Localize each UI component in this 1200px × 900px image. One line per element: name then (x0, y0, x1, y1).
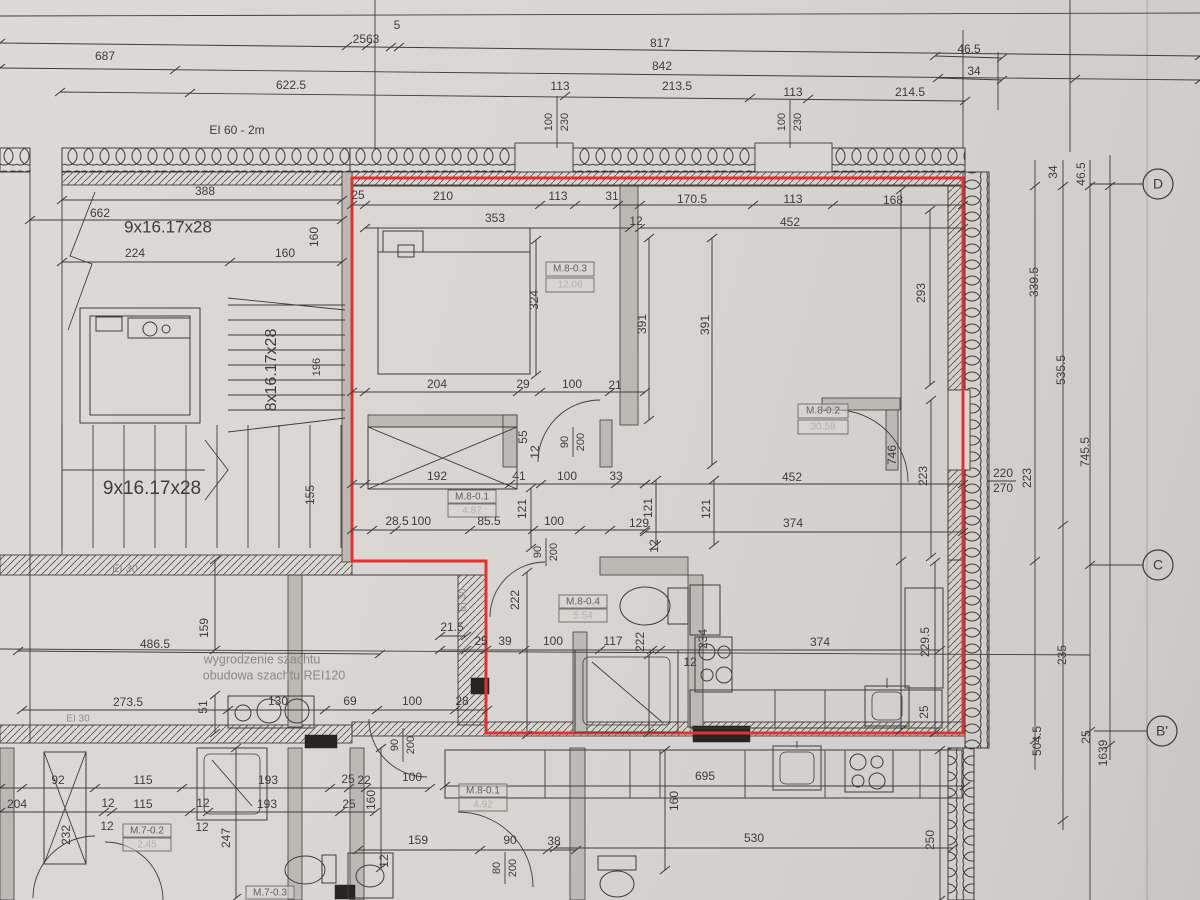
dimension-label: 92 (51, 773, 65, 787)
dimension-label: M.8-0.3 (553, 264, 587, 275)
interior-wall (350, 748, 364, 900)
dimension-label: 270 (993, 481, 1013, 495)
dimension-label: 204 (427, 377, 447, 391)
dimension-label: 160 (667, 791, 681, 811)
dimension-tick (560, 92, 570, 100)
fixture-circle (716, 667, 732, 683)
grid-marker-label: D (1153, 176, 1163, 192)
fixture (322, 855, 336, 883)
dimension-label: 224 (125, 246, 145, 260)
drawing-path (205, 440, 228, 500)
dimension-label: 22 (357, 773, 371, 787)
dimension-label: 100 (557, 469, 577, 483)
window (515, 143, 573, 172)
fixture-circle (852, 775, 864, 787)
dimension-label: 46.5 (957, 42, 981, 56)
dimension-label: 51 (196, 700, 210, 714)
dimension-label: 214.5 (895, 85, 925, 99)
dimension-label: 159 (197, 618, 211, 638)
dimension-label: 160 (275, 246, 295, 260)
dimension-label: 324 (527, 290, 541, 310)
dimension-label: 85.5 (477, 514, 501, 528)
fixture-ellipse (620, 587, 670, 625)
dimension-label: 130 (268, 694, 288, 708)
dimension-label: 339.5 (1027, 267, 1041, 297)
fixture-inner (780, 752, 814, 784)
dimension-label: 12 (101, 796, 115, 810)
dimension-label: 5.54 (573, 611, 593, 622)
dimension-label: 2563 (353, 32, 380, 46)
dimension-label: 2.45 (137, 840, 157, 851)
interior-wall (570, 748, 585, 900)
dimension-label: 247 (219, 828, 233, 848)
column-marker (335, 885, 355, 899)
dimension-label: 12 (377, 854, 391, 868)
dimension-label: 695 (695, 769, 715, 783)
dimension-label: 160 (364, 790, 378, 810)
dimension-label: 113 (550, 79, 569, 93)
dimension-label: 160 (307, 227, 321, 247)
dimension-label: 293 (914, 283, 928, 303)
dimension-label: 38 (547, 834, 561, 848)
fixture (398, 245, 414, 257)
dimension-label: 230 (792, 113, 804, 131)
dimension-label: 100 (402, 694, 422, 708)
drawing-line (228, 418, 345, 432)
dimension-label: 25 (342, 797, 356, 811)
exterior-wall-insulation (948, 748, 974, 900)
drawing-line (0, 13, 1200, 16)
drawing-line (228, 298, 345, 310)
dimension-label: 25 (917, 705, 931, 719)
grid-marker-label: C (1153, 557, 1163, 573)
dimension-label: 121 (699, 499, 713, 519)
interior-wall (288, 748, 302, 900)
dimension-label: 193 (258, 773, 278, 787)
dimension-label: 100 (402, 770, 422, 784)
dimension-label: 25 (351, 188, 365, 202)
dimension-label: 100 (544, 514, 564, 528)
dimension-label: 200 (507, 859, 519, 877)
dimension-label: 25 (341, 772, 355, 786)
dimension-label: 121 (641, 498, 655, 518)
dimension-label: 662 (90, 206, 110, 220)
drawing-path (458, 812, 533, 887)
dimension-line (18, 651, 380, 654)
dimension-label: 69 (343, 694, 357, 708)
dimension-label: 745.5 (1078, 437, 1092, 467)
dimension-label: 530 (744, 831, 764, 845)
dimension-label: 210 (433, 189, 453, 203)
fixture (128, 318, 190, 338)
dimension-label: 121 (515, 499, 529, 519)
dimension-label: 113 (783, 192, 802, 206)
dimension-label: 388 (195, 184, 215, 198)
dimension-label: 8x16.17x28 (263, 329, 280, 412)
dimension-label: 223 (1020, 468, 1034, 488)
dimension-label: 504.5 (1030, 726, 1044, 756)
dimension-label: 535.5 (1054, 355, 1068, 385)
dimension-label: 486.5 (140, 637, 170, 651)
dimension-label: 452 (780, 215, 800, 229)
dimension-label: 90 (389, 739, 401, 751)
exterior-wall-insulation (0, 148, 30, 172)
dimension-label: 12 (196, 796, 210, 810)
wall-hatch (62, 172, 350, 185)
dimension-label: 90 (559, 436, 571, 448)
dimension-label: 12 (195, 820, 209, 834)
dimension-label: 222 (633, 632, 647, 652)
drawing-path (538, 400, 600, 462)
exterior-wall-insulation (350, 148, 515, 172)
dimension-label: 374 (810, 635, 830, 649)
dimension-label: 229.5 (918, 627, 932, 657)
fixture (80, 308, 200, 423)
dimension-label: 234 (696, 629, 710, 649)
dimension-label: 213.5 (662, 79, 692, 93)
dimension-label: 232 (59, 825, 73, 845)
dimension-label: 28.5 (385, 514, 409, 528)
dimension-label: obudowa szachtu REI120 (203, 668, 346, 682)
dimension-label: 192 (427, 469, 447, 483)
fixture-inner (872, 692, 902, 720)
dimension-label: EI 30 (458, 588, 469, 612)
dimension-label: 12 (683, 655, 697, 669)
dimension-line (0, 68, 1200, 80)
dimension-label: 34 (1046, 165, 1060, 179)
dimension-label: EI 60 - 2m (209, 123, 264, 137)
wall-hatch (0, 555, 352, 575)
window (948, 390, 970, 470)
dimension-label: 117 (603, 634, 622, 648)
fixture-circle (871, 756, 883, 768)
floor-plan-svg: 68725635817842622.5113213.5113214.546.53… (0, 0, 1200, 900)
dimension-label: 90 (503, 833, 517, 847)
dimension-label: 193 (257, 797, 277, 811)
dimension-label: 9x16.17x28 (103, 478, 201, 499)
dimension-label: EI 30 (66, 714, 90, 725)
dimension-label: 200 (548, 543, 560, 561)
fixture (668, 588, 688, 624)
fixture (598, 856, 636, 870)
dimension-line (0, 43, 1200, 56)
interior-wall (368, 415, 517, 427)
dimension-label: EI 30 (112, 563, 138, 575)
dimension-label: M.7-0.3 (253, 888, 287, 899)
dimension-label: 353 (485, 211, 505, 225)
dimension-label: 100 (562, 377, 582, 391)
dimension-label: 842 (652, 59, 672, 73)
dimension-label: 115 (133, 797, 152, 811)
dimension-label: 12 (647, 539, 661, 553)
dimension-label: 41 (512, 469, 526, 483)
grid-marker-label: B' (1156, 723, 1168, 739)
dimension-label: 25 (474, 634, 488, 648)
dimension-label: M.7-0.2 (130, 826, 164, 837)
dimension-line (60, 92, 965, 101)
dimension-line (935, 56, 1002, 58)
fixture (378, 228, 530, 374)
blueprint-page: 68725635817842622.5113213.5113214.546.53… (0, 0, 1200, 900)
interior-wall (0, 748, 14, 900)
dimension-label: 235 (1055, 645, 1069, 665)
dimension-label: 622.5 (276, 78, 306, 92)
dimension-label: 46.5 (1074, 162, 1088, 186)
dimension-label: 113 (783, 85, 802, 99)
dimension-label: 100 (776, 113, 788, 131)
dimension-label: 100 (543, 113, 555, 131)
dimension-label: 1639 (1096, 739, 1110, 766)
dimension-label: 155 (303, 485, 317, 505)
dimension-label: 21 (608, 378, 622, 392)
dimension-label: 21.5 (440, 620, 464, 634)
exterior-wall-insulation (832, 148, 965, 172)
dimension-label: wygrodzenie szachtu (203, 652, 321, 666)
dimension-label: 30.58 (810, 422, 835, 433)
dimension-label: M.8-0.1 (455, 492, 489, 503)
fixture-circle (162, 325, 170, 333)
dimension-tick (342, 42, 352, 50)
dimension-tick (745, 94, 755, 102)
dimension-label: 25 (1079, 730, 1093, 744)
dimension-label: 113 (548, 189, 567, 203)
fixture-circle (850, 754, 866, 770)
dimension-label: 9x16.17x28 (124, 217, 212, 236)
dimension-label: 200 (575, 433, 587, 451)
dimension-label: 39 (498, 634, 512, 648)
dimension-label: 230 (559, 113, 571, 131)
dimension-label: 29 (516, 377, 530, 391)
dimension-label: 220 (993, 466, 1013, 480)
dimension-label: 80 (491, 862, 503, 874)
dimension-label: 687 (95, 49, 115, 63)
dimension-label: 374 (783, 516, 803, 530)
dimension-label: 12 (100, 819, 114, 833)
dimension-label: 28 (455, 694, 469, 708)
dimension-label: 5 (394, 18, 401, 32)
dimension-label: 12 (629, 214, 643, 228)
interior-wall (600, 420, 612, 467)
dimension-label: 100 (411, 514, 431, 528)
interior-wall (600, 557, 688, 575)
dimension-label: 452 (782, 470, 802, 484)
dimension-label: 31 (605, 189, 619, 203)
drawing-path (592, 662, 662, 722)
dimension-label: 222 (508, 590, 522, 610)
dimension-label: 4.92 (473, 800, 493, 811)
dimension-label: 170.5 (677, 192, 707, 206)
dimension-label: M.8-0.2 (806, 406, 840, 417)
dimension-label: 391 (698, 315, 712, 335)
fixture-ellipse (600, 871, 634, 897)
dimension-label: 55 (516, 430, 530, 444)
dimension-label: 34 (967, 64, 981, 78)
dimension-label: M.8-0.4 (566, 597, 600, 608)
fixture (383, 231, 423, 252)
fixture-circle (235, 705, 251, 721)
window (755, 143, 832, 172)
exterior-wall-insulation (573, 148, 755, 172)
dimension-label: 273.5 (113, 695, 143, 709)
dimension-label: M.8-0.1 (466, 786, 500, 797)
fixture-circle (718, 646, 730, 658)
dimension-label: 746 (885, 445, 899, 465)
column-marker (305, 735, 337, 748)
dimension-label: 159 (408, 833, 428, 847)
drawing-path (212, 760, 252, 806)
dimension-label: 168 (883, 193, 903, 207)
interior-wall (503, 415, 517, 467)
dimension-label: 12.06 (557, 280, 582, 291)
dimension-label: 391 (635, 314, 649, 334)
dimension-label: 200 (405, 736, 417, 754)
fixture-circle (869, 773, 885, 789)
grid-markers-layer: DCB' (1090, 169, 1177, 746)
dimension-label: 250 (923, 830, 937, 850)
dimension-label: 33 (609, 469, 623, 483)
dimension-label: 12 (528, 445, 542, 459)
dimension-label: 90 (532, 546, 544, 558)
dimension-label: 204 (7, 797, 27, 811)
drawing-path (44, 752, 86, 864)
dimension-label: 100 (543, 634, 563, 648)
dimension-label: 817 (650, 36, 670, 50)
exterior-wall-insulation (62, 148, 350, 172)
dimension-label: 115 (133, 773, 152, 787)
fixture-circle (143, 322, 157, 336)
dimension-label: 196 (311, 358, 323, 376)
fixture (96, 317, 122, 331)
dimension-label: 223 (916, 466, 930, 486)
